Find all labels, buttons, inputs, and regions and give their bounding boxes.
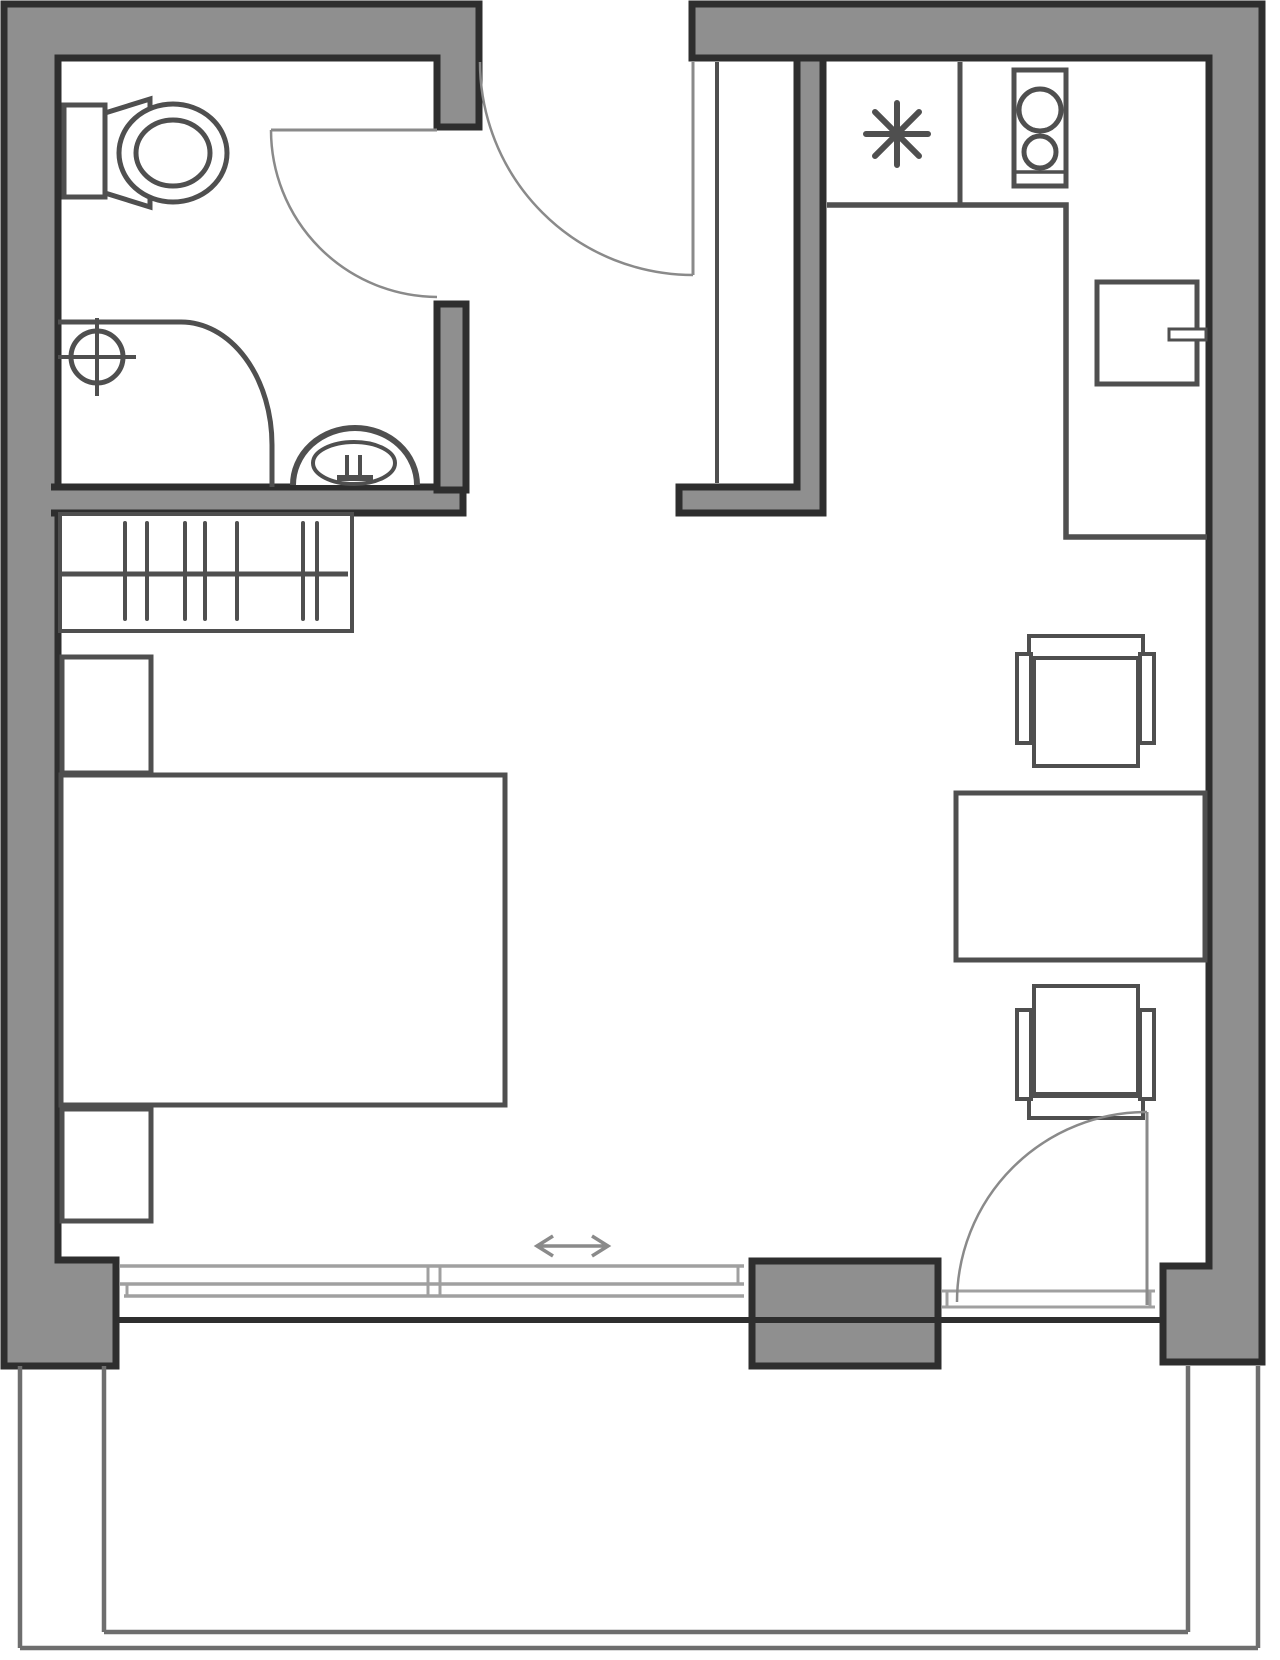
- dining-set: [956, 636, 1205, 1118]
- chair-north-seat: [1034, 658, 1138, 766]
- railing-inner: [104, 1366, 1188, 1632]
- fridge-handle: [1169, 329, 1206, 340]
- floor-plan-drawing: [0, 0, 1280, 1660]
- slide-arrow-icon: [537, 1236, 608, 1256]
- entrance: [480, 62, 717, 483]
- entrance-door-swing-arc: [480, 62, 693, 275]
- kitchen-sink-icon: [866, 103, 928, 165]
- bathroom-fixtures: [58, 99, 437, 487]
- chair-south-arm-left: [1017, 1010, 1031, 1099]
- shower-drain-cross: [58, 318, 136, 396]
- sleeping-area: [60, 514, 505, 1221]
- chair-south-back: [1029, 1096, 1143, 1118]
- railing-outer: [20, 1366, 1258, 1648]
- chair-south-arm-right: [1140, 1010, 1154, 1099]
- south-glazing: [118, 1112, 1161, 1320]
- nightstand-head: [62, 657, 151, 773]
- window-mullions: [127, 1266, 738, 1297]
- chair-north-arm-right: [1140, 654, 1154, 743]
- chair-south-seat: [1034, 986, 1138, 1094]
- bathroom-door-swing-arc: [271, 130, 437, 297]
- dining-table: [956, 793, 1205, 960]
- wall-bathroom-south: [51, 487, 463, 513]
- balcony-door-swing-arc: [957, 1112, 1147, 1302]
- wall-kitchen-partition: [679, 58, 823, 513]
- wall-bathroom-east: [437, 304, 466, 490]
- chair-north-back: [1029, 636, 1143, 658]
- chair-north-arm-left: [1017, 654, 1031, 743]
- kitchen-fixtures: [827, 62, 1207, 537]
- bed: [61, 775, 505, 1105]
- wall-pier-mid: [752, 1261, 938, 1366]
- nightstand-foot: [62, 1109, 151, 1221]
- floor-plan-page: [0, 0, 1280, 1660]
- shower-enclosure: [58, 322, 272, 487]
- toilet-cistern: [64, 105, 105, 197]
- balcony-railing: [20, 1366, 1258, 1648]
- balcony-door-sill-lines: [942, 1291, 1155, 1307]
